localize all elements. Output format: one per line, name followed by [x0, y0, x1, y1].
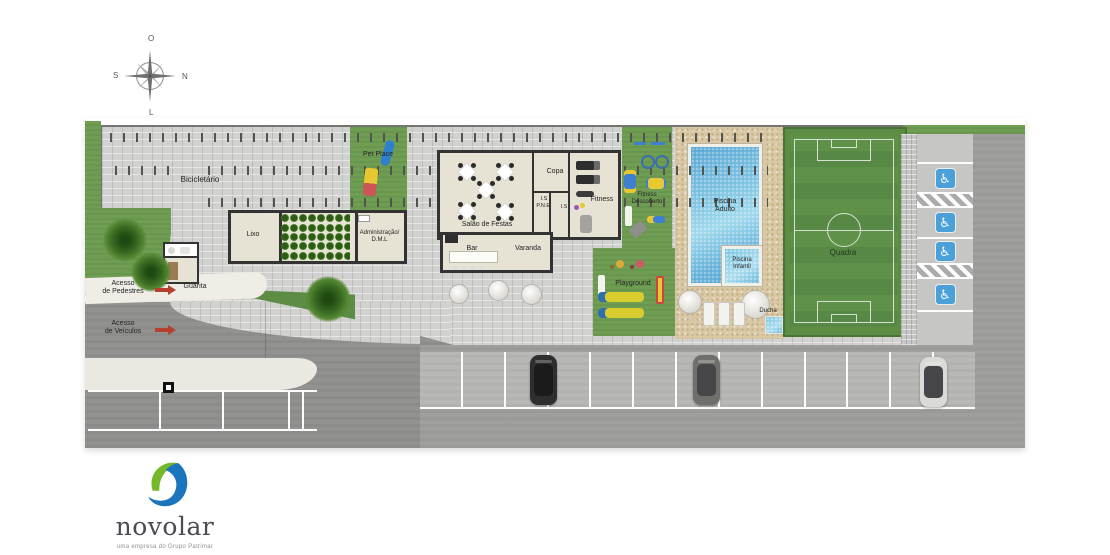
umbrella-table	[678, 290, 702, 314]
court-goal-box	[831, 314, 857, 323]
parking-space	[634, 352, 677, 407]
hedge-row	[281, 242, 350, 250]
novolar-logo-icon	[137, 456, 193, 512]
hedge-row	[281, 214, 350, 222]
label-fitness-descoberto: Fitness	[618, 192, 676, 199]
label-bicicletario: Bicicletário	[140, 175, 260, 185]
accessible-parking-space: ♿	[917, 239, 973, 265]
label-guarita: Guarita	[173, 283, 217, 291]
umbrella-table	[488, 280, 509, 301]
outdoor-gym-roller	[647, 216, 665, 223]
compass-rose: O N L S	[110, 34, 190, 118]
label-acesso-pedestres: Acesso	[91, 280, 155, 288]
workout-bench	[580, 215, 592, 233]
compass-star-icon	[122, 48, 178, 104]
spring-toy	[636, 260, 644, 268]
exercise-bike-icon	[641, 155, 655, 169]
label-copa: Copa	[535, 168, 575, 176]
label-is: I.S	[556, 204, 572, 211]
toilet-fixture	[168, 247, 175, 254]
sun-lounger	[703, 302, 715, 326]
sun-lounger	[718, 302, 730, 326]
outdoor-gym-bar	[634, 142, 646, 145]
wheelchair-icon: ♿	[936, 169, 955, 188]
parking-space	[917, 312, 973, 345]
label-pet-place: Pet Place	[348, 151, 408, 159]
exercise-balls	[574, 205, 579, 210]
parking-space	[290, 392, 304, 429]
label-salao-de-festas: Salão de Festas	[437, 221, 537, 229]
party-table	[496, 163, 514, 181]
treadmill	[576, 175, 600, 184]
parking-space	[88, 392, 161, 429]
accessible-parking-space: ♿	[917, 164, 973, 194]
wheelchair-icon: ♿	[936, 242, 955, 261]
label-quadra: Quadra	[813, 248, 873, 258]
parking-space	[848, 352, 891, 407]
zone-green-top-right	[903, 125, 1025, 134]
interior-wall	[532, 191, 570, 193]
parked-car	[920, 357, 947, 407]
exercise-bike-icon	[655, 155, 669, 169]
walkway-strip	[901, 134, 917, 345]
no-parking-hatch	[917, 194, 973, 208]
site-plan-page: O N L S	[0, 0, 1110, 555]
wheelchair-icon: ♿	[936, 285, 955, 304]
parked-car	[530, 355, 557, 405]
sink-fixture	[358, 215, 370, 222]
brand-name: novolar	[100, 512, 230, 541]
brand-tagline: uma empresa do Grupo Patrimar	[100, 544, 230, 550]
label-administracao: Administração/	[352, 230, 407, 237]
hedge-row	[281, 224, 350, 232]
parking-space	[720, 352, 763, 407]
accessible-parking-space: ♿	[917, 279, 973, 312]
outdoor-gym-equipment	[624, 170, 636, 193]
bike-rack-row	[115, 166, 173, 175]
pedestrian-access-arrow-icon	[155, 285, 177, 295]
treadmill	[576, 161, 600, 170]
accessible-parking-column: ♿ ♿ ♿ ♿	[917, 134, 973, 345]
sink-fixture	[180, 247, 190, 254]
palm-tree	[305, 276, 351, 322]
hedge-row	[281, 233, 350, 241]
label-ducha: Ducha	[751, 308, 785, 315]
bike-rack-row	[110, 133, 770, 142]
interior-wall	[568, 153, 570, 237]
parking-space	[763, 352, 806, 407]
label-piscina-adulto: Piscina	[695, 198, 755, 206]
spring-toy	[616, 260, 624, 268]
outdoor-bench	[625, 206, 632, 226]
parking-space	[463, 352, 506, 407]
left-parking-row	[88, 390, 317, 431]
parking-space	[161, 392, 224, 429]
parked-car	[693, 355, 720, 405]
guard-house-restroom	[165, 244, 197, 258]
umbrella-table	[521, 284, 542, 305]
label-acesso-veiculos: Acesso	[91, 320, 155, 328]
parking-space	[420, 352, 463, 407]
shower-area	[765, 316, 783, 334]
hedge-row	[281, 252, 350, 260]
umbrella-table	[449, 284, 469, 304]
accessible-parking-space: ♿	[917, 208, 973, 239]
sun-lounger	[733, 302, 745, 326]
site-plan: ♿ ♿ ♿ ♿	[85, 118, 1025, 448]
parking-space	[224, 392, 291, 429]
outdoor-gym-bar	[651, 142, 665, 145]
compass-letter-north: N	[182, 72, 188, 81]
court-center-circle	[827, 213, 861, 247]
label-lixo: Lixo	[230, 231, 276, 239]
bar-equipment	[445, 235, 458, 243]
parking-space	[917, 134, 973, 164]
outdoor-gym-equipment	[646, 178, 666, 189]
compass-letter-south: S	[113, 71, 118, 80]
label-playground: Playground	[602, 280, 664, 288]
label-piscina-infantil: Piscina	[723, 257, 761, 264]
party-table	[458, 163, 476, 181]
gate-post	[163, 382, 174, 393]
label-is-pne: I.S	[533, 196, 555, 203]
parking-space	[304, 392, 317, 429]
parking-space	[806, 352, 849, 407]
sports-court	[790, 135, 898, 327]
no-parking-hatch	[917, 265, 973, 279]
green-roof-hedges	[279, 213, 352, 261]
parking-space	[591, 352, 634, 407]
wheelchair-icon: ♿	[936, 213, 955, 232]
playground-slide	[598, 292, 644, 302]
court-goal-box	[831, 139, 857, 148]
bar-stools	[453, 266, 457, 270]
vehicle-access-arrow-icon	[155, 325, 177, 335]
label-bar: Bar	[457, 245, 487, 253]
party-table	[477, 181, 495, 199]
party-table	[496, 203, 514, 221]
label-varanda: Varanda	[509, 245, 547, 253]
party-table	[458, 202, 476, 220]
compass-letter-west: O	[148, 34, 154, 43]
sidewalk-strip	[85, 358, 317, 390]
brand-logo: novolar uma empresa do Grupo Patrimar	[100, 456, 230, 552]
playground-slide	[598, 308, 644, 318]
compass-letter-east: L	[149, 108, 153, 117]
